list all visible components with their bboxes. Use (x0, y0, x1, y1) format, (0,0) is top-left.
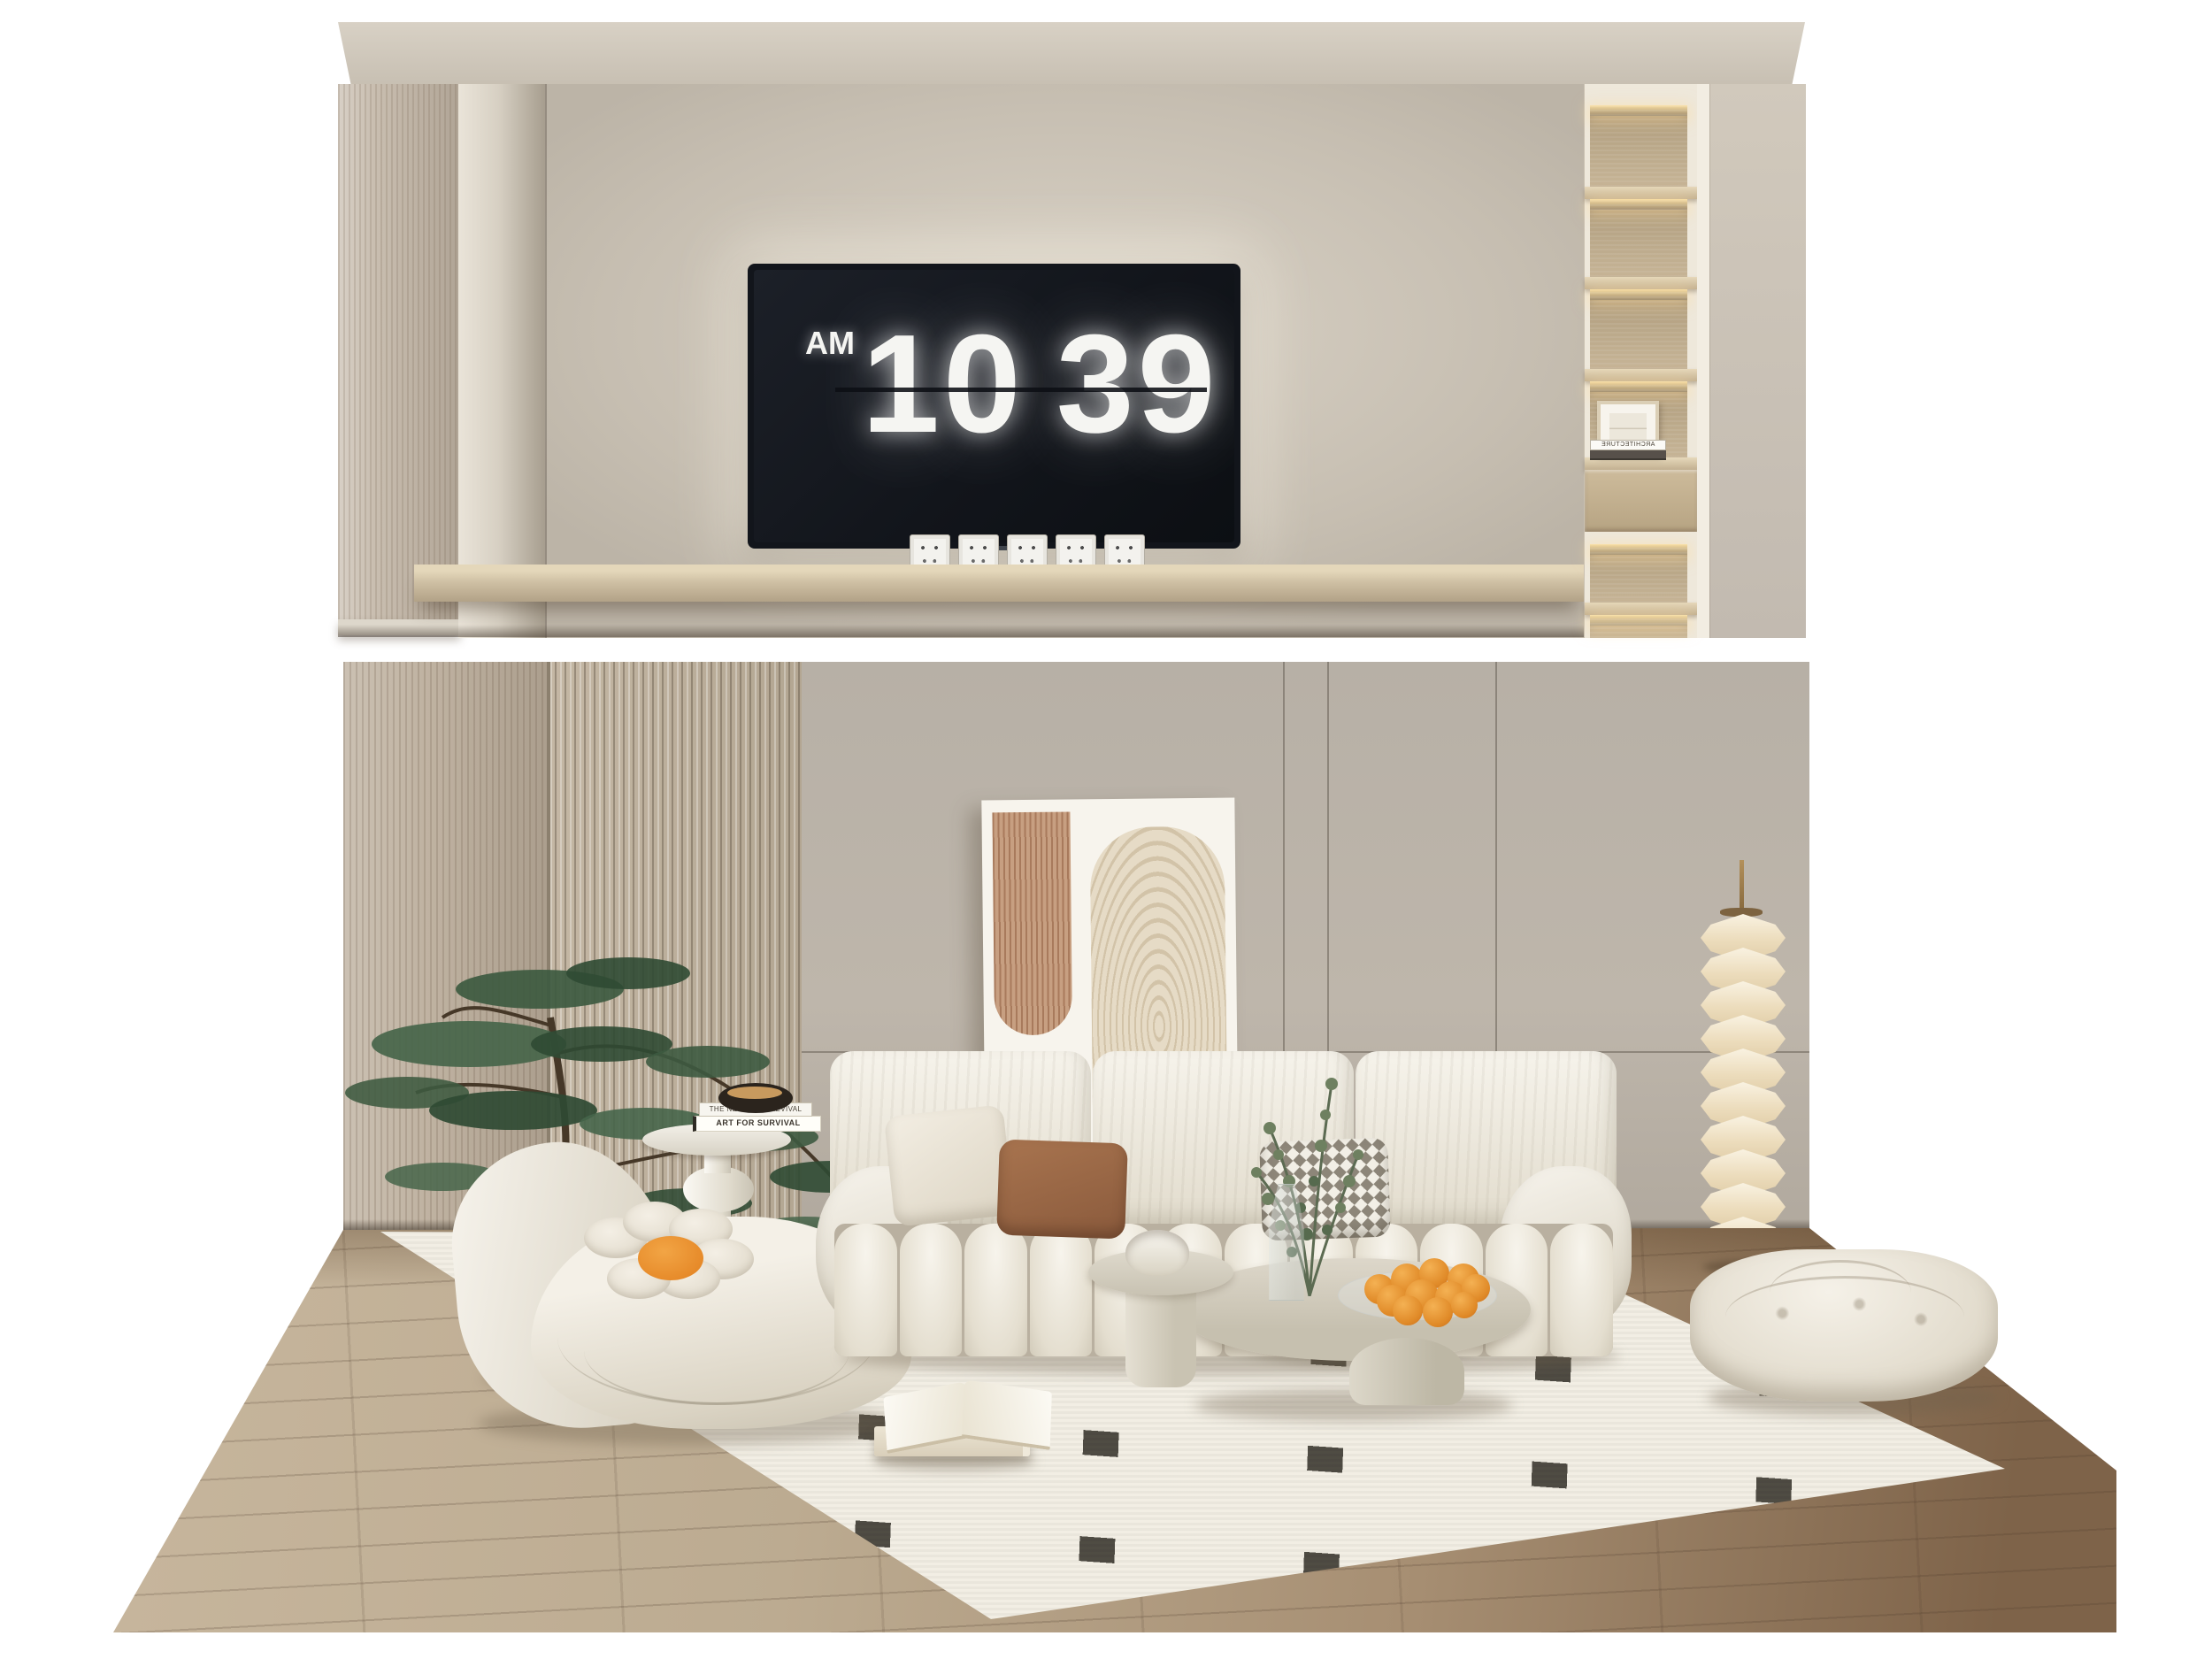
clock-hour: 10 (862, 314, 1025, 454)
orange-fruit (1423, 1297, 1453, 1327)
floor-pouf (1690, 1249, 1998, 1402)
shelf-niche (1590, 105, 1687, 187)
decorative-bowl (718, 1083, 793, 1113)
throw-pillow-terracotta (996, 1140, 1128, 1240)
book-art-for-survival: ART FOR SURVIVAL (693, 1116, 821, 1132)
flip-clock: AM 10 39 (805, 314, 1219, 454)
wall-seam (1283, 662, 1285, 1053)
eucalyptus-stems (1225, 1031, 1394, 1296)
right-wall-cap (1709, 84, 1806, 638)
book-spine-dark (1590, 450, 1666, 460)
book-spine: ARCHITECTURE (1590, 440, 1666, 450)
wood-drawer-box (1585, 470, 1698, 532)
shelf-niche (1590, 544, 1687, 603)
media-shelf (414, 565, 1584, 602)
wall-seam (1495, 662, 1497, 1053)
wood-shelf (1585, 369, 1698, 381)
book-stack: ARCHITECTURE (1590, 440, 1666, 460)
sofa-seat-channel (834, 1224, 897, 1356)
shelf-niche (1590, 199, 1687, 277)
shelf-niche (1590, 615, 1687, 638)
sofa-seat-channel (964, 1224, 1027, 1356)
coffee-table-small-leg (1125, 1283, 1196, 1387)
wall-seam (1327, 662, 1329, 1053)
clock-minute: 39 (1056, 314, 1219, 454)
shelf-unit-divider (1697, 84, 1709, 638)
sofa-seat-channel (1030, 1224, 1093, 1356)
shelf-unit: ARCHITECTURE (1584, 84, 1698, 638)
art-arch-motif-brown (992, 811, 1072, 1035)
interior-render: AM 10 39 ARCHITECTURE (0, 0, 2212, 1659)
wall-tv: AM 10 39 (748, 264, 1240, 549)
throw-pillow-cream (884, 1104, 1014, 1226)
tv-screen: AM 10 39 (754, 270, 1234, 542)
wood-pillar (338, 84, 460, 634)
ceramic-bowl (1125, 1230, 1189, 1276)
sofa-seat-channel (1550, 1224, 1613, 1356)
clock-meridiem: AM (805, 325, 855, 362)
shelf-niche (1590, 289, 1687, 369)
curved-wall-panel (458, 84, 547, 638)
flower-pillow-center (638, 1236, 703, 1280)
orange-fruit (1451, 1292, 1478, 1318)
wood-shelf (1585, 603, 1698, 615)
open-book-right-page (962, 1379, 1052, 1450)
flip-clock-split-line (835, 388, 1207, 392)
tv-wall-cornice (338, 22, 1805, 86)
coffee-table-large-base (1349, 1338, 1464, 1405)
wood-shelf (1585, 277, 1698, 289)
orange-fruit (1393, 1295, 1423, 1325)
lamp-finial-rod (1740, 860, 1744, 911)
floor-lamp (1701, 914, 1786, 1264)
wood-shelf (1585, 187, 1698, 199)
sofa-seat-channel (900, 1224, 963, 1356)
